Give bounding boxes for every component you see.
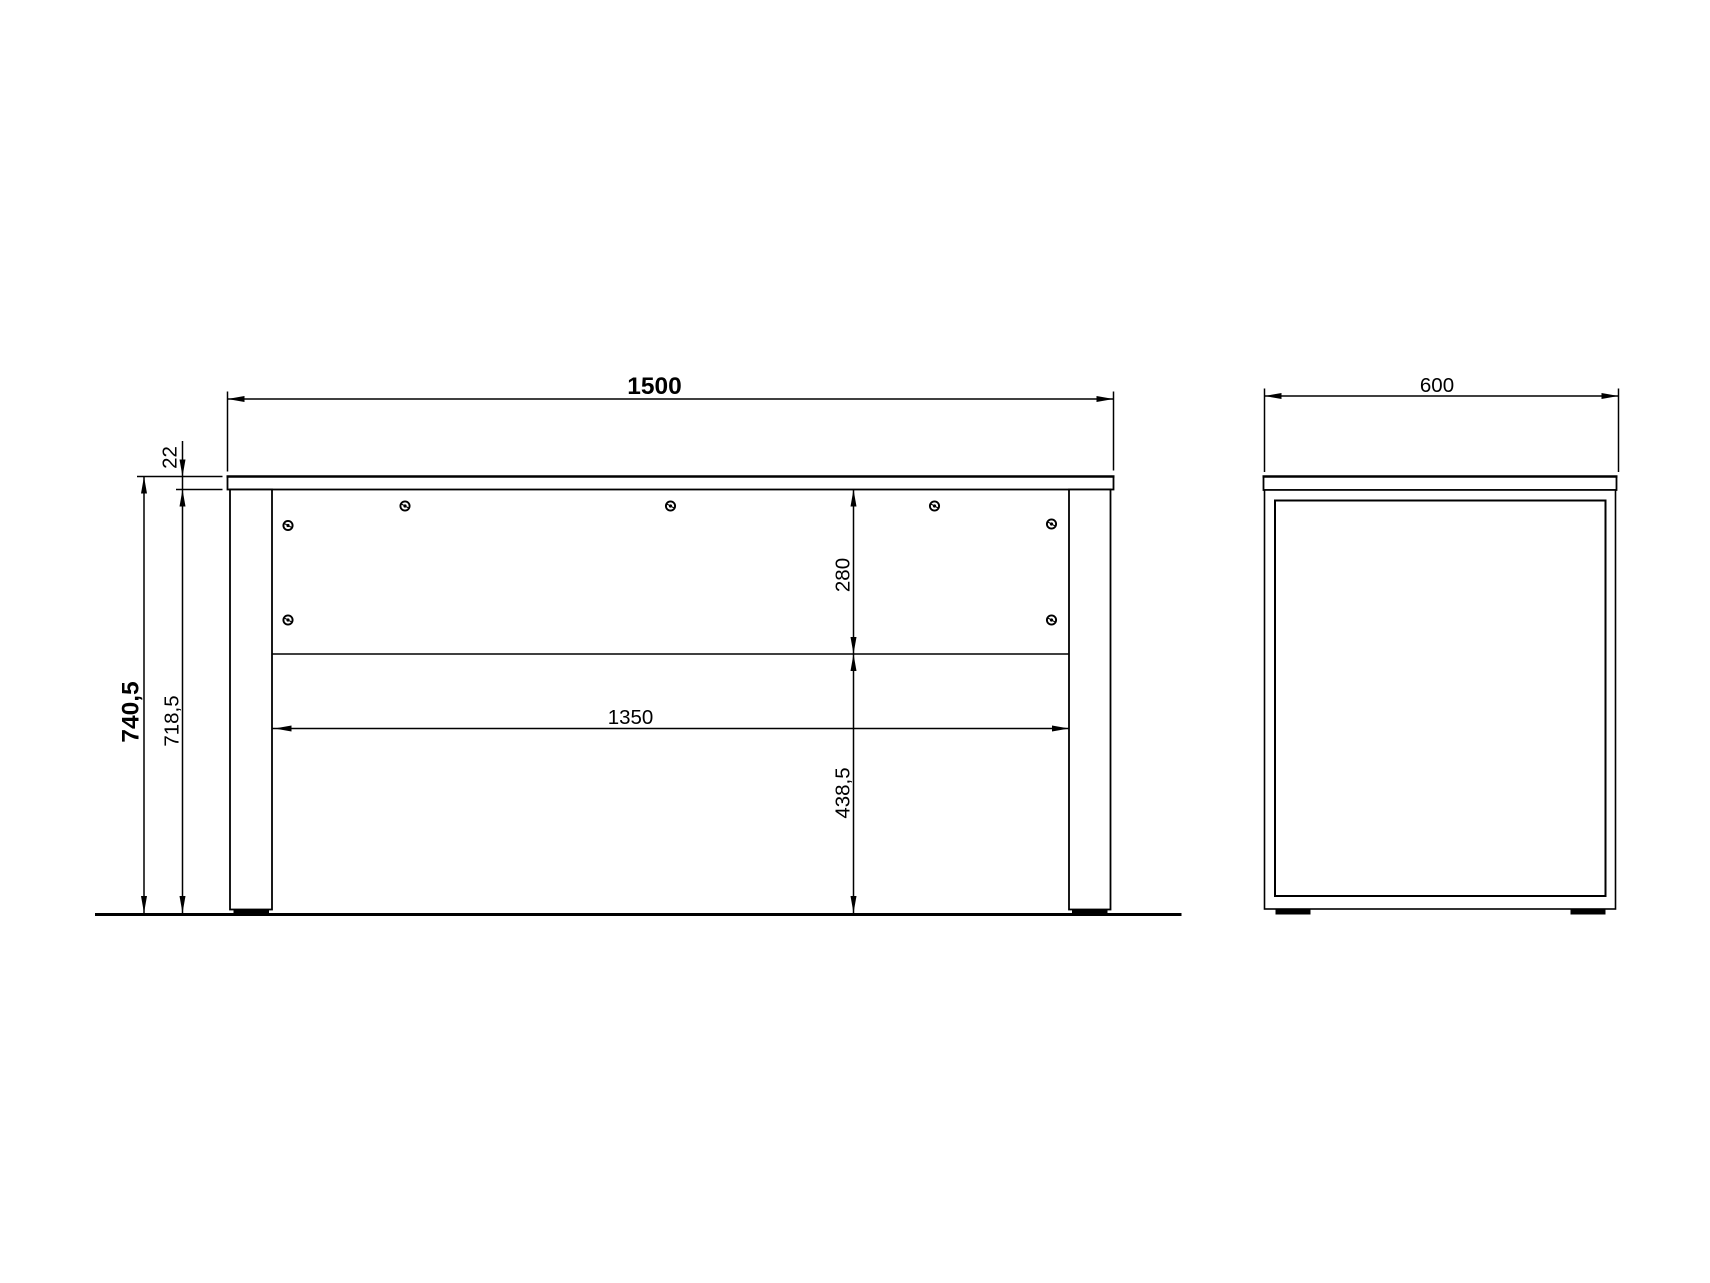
svg-text:600: 600: [1420, 374, 1454, 397]
svg-text:740,5: 740,5: [118, 681, 145, 742]
svg-text:280: 280: [832, 558, 855, 592]
svg-text:22: 22: [159, 446, 182, 469]
svg-text:1500: 1500: [627, 373, 682, 400]
svg-text:438,5: 438,5: [832, 767, 855, 818]
svg-text:718,5: 718,5: [161, 695, 184, 746]
svg-text:1350: 1350: [608, 706, 654, 729]
